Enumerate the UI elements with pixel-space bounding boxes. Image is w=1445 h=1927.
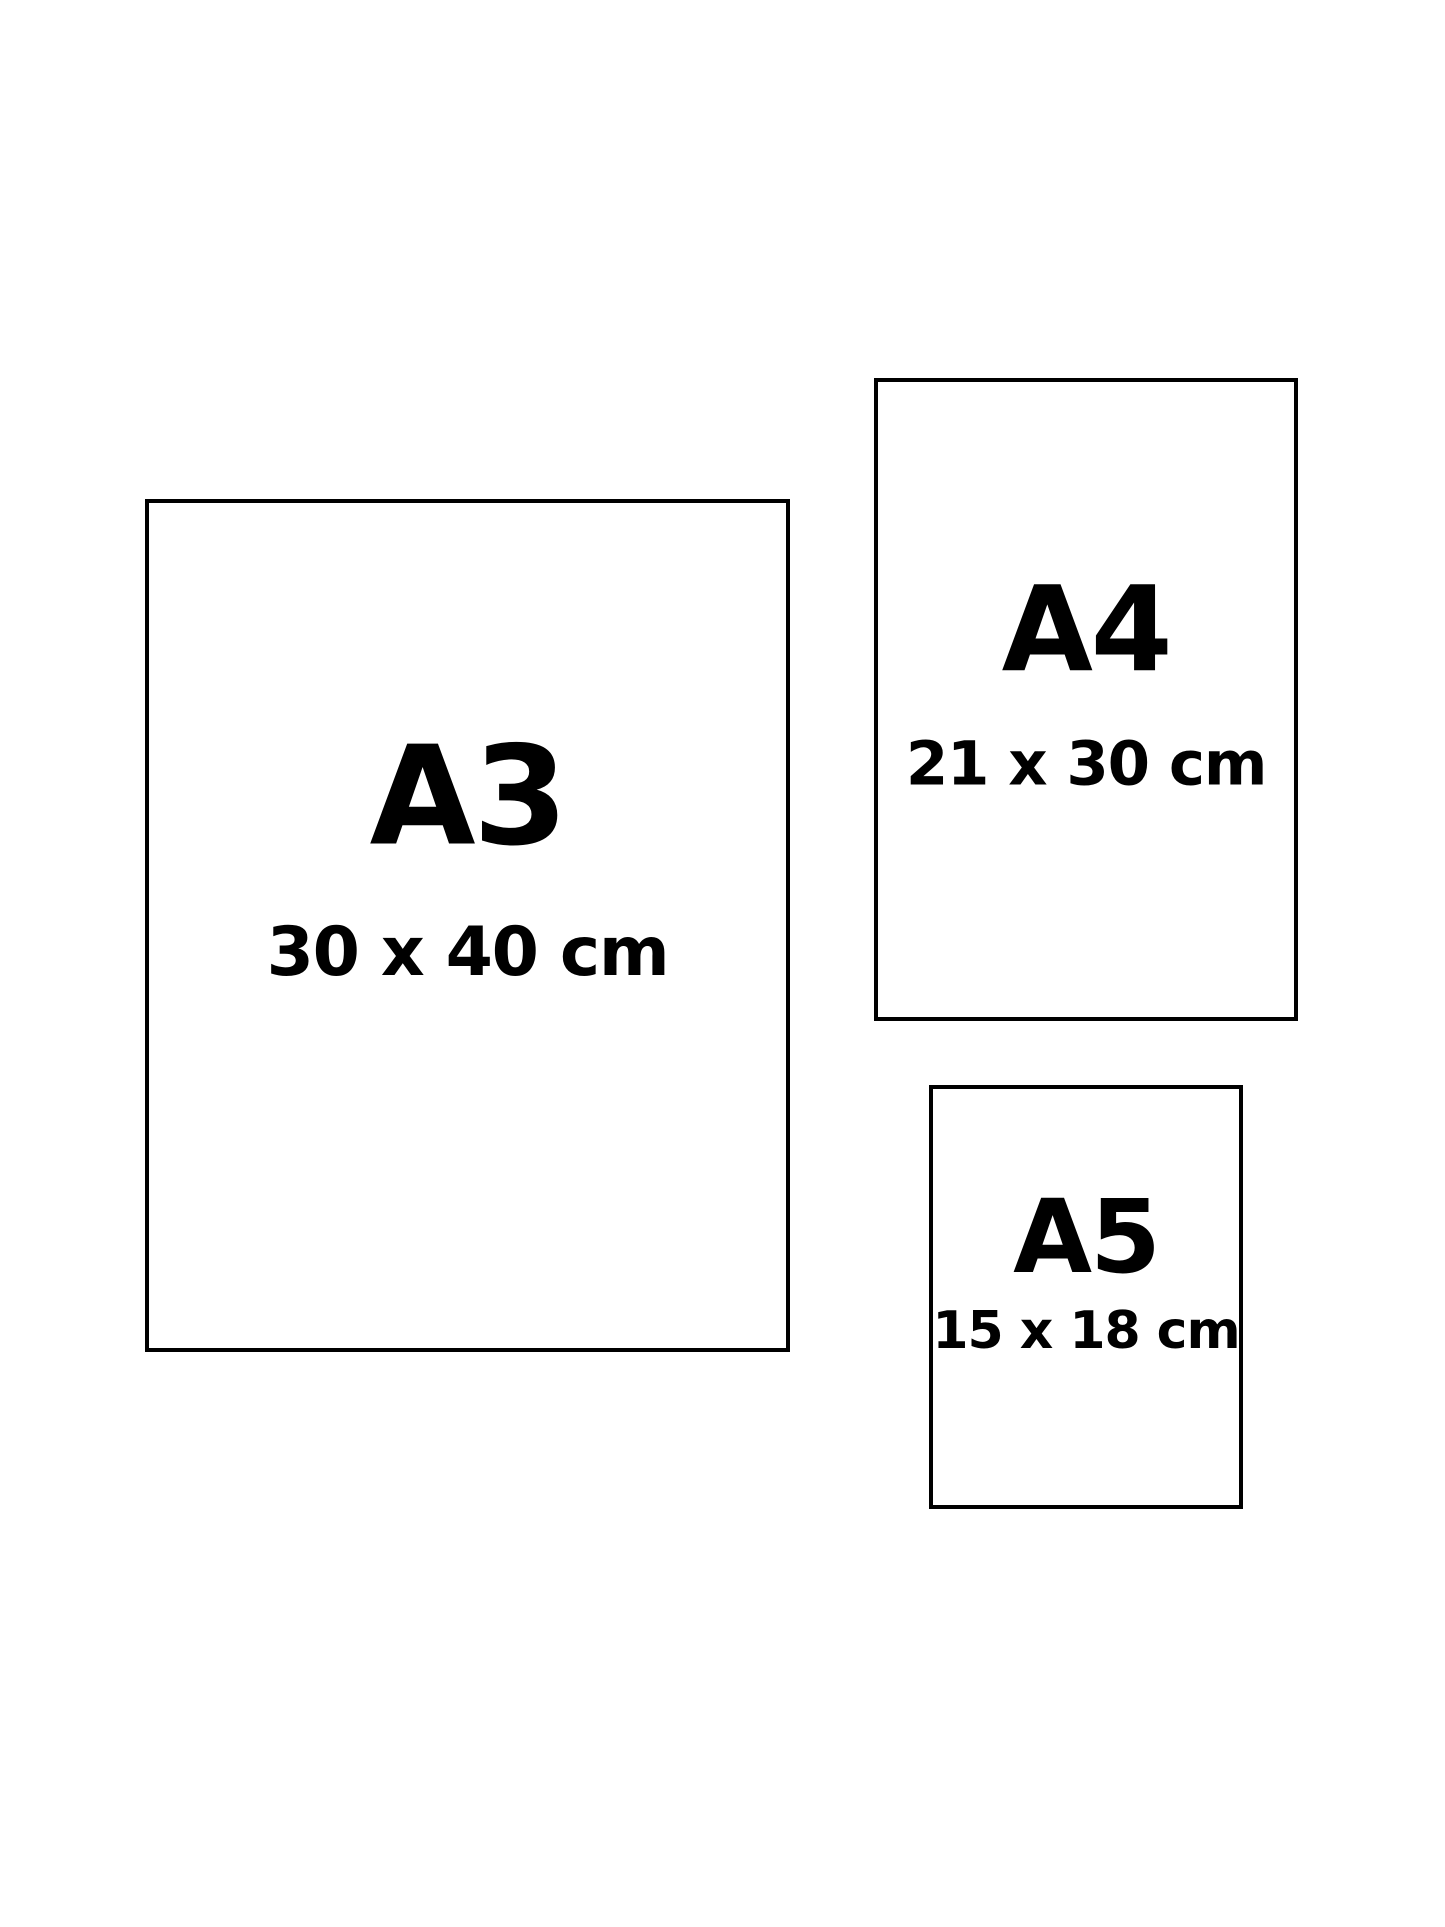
paper-size-dimensions-a4: 21 x 30 cm [906,734,1266,795]
paper-size-box-a4: A4 21 x 30 cm [874,378,1298,1021]
paper-size-comparison-diagram: A3 30 x 40 cm A4 21 x 30 cm A5 15 x 18 c… [0,0,1445,1927]
paper-size-dimensions-a5: 15 x 18 cm [932,1305,1239,1357]
paper-size-dimensions-a3: 30 x 40 cm [267,919,669,987]
paper-size-label-a3: A3 [370,729,566,866]
paper-size-label-a4: A4 [1002,570,1171,688]
paper-size-label-a5: A5 [1013,1187,1159,1289]
paper-size-box-a5: A5 15 x 18 cm [929,1085,1243,1509]
paper-size-box-a3: A3 30 x 40 cm [145,499,790,1352]
